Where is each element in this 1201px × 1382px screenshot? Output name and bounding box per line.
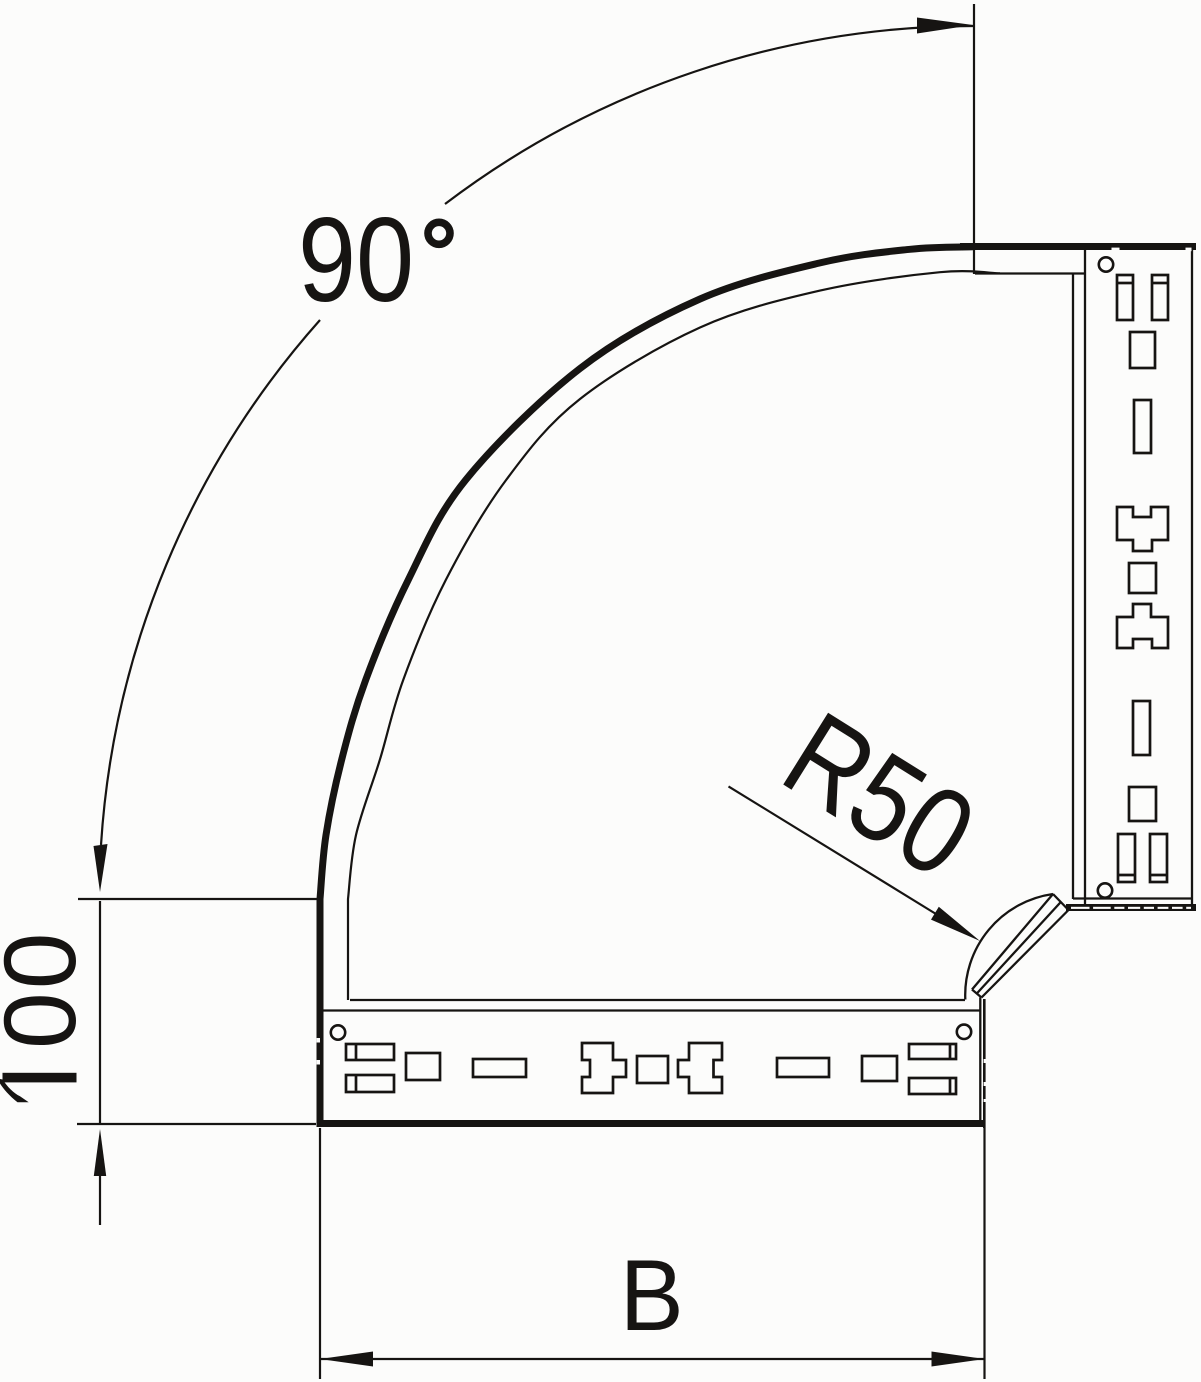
svg-text:B: B (620, 1239, 684, 1352)
svg-text:90: 90 (298, 192, 414, 326)
svg-text:00: 00 (0, 930, 97, 1049)
